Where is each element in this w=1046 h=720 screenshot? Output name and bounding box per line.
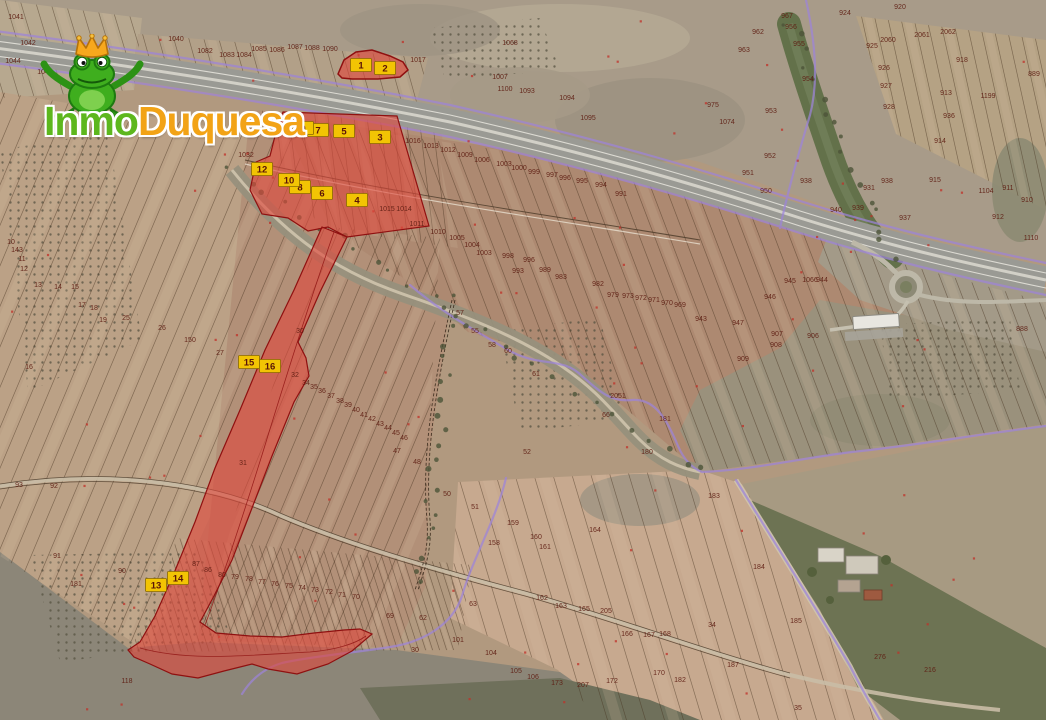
survey-mark	[890, 584, 892, 586]
parcel-number: 164	[589, 527, 601, 534]
parcel-number: 1005	[449, 235, 465, 242]
parcel-number: 1040	[168, 36, 184, 43]
parcel-number: 1032	[238, 152, 254, 159]
parcel-number: 2062	[940, 29, 956, 36]
survey-mark	[640, 362, 642, 364]
survey-mark	[863, 532, 865, 534]
parcel-number: 940	[830, 207, 842, 214]
svg-text:2: 2	[382, 64, 387, 75]
parcel-number: 31	[239, 460, 247, 467]
parcel-number: 73	[311, 587, 319, 594]
parcel-number: 971	[648, 297, 660, 304]
survey-mark	[515, 292, 517, 294]
parcel-number: 35	[310, 384, 318, 391]
parcel-number: 1104	[978, 188, 993, 195]
parcel-number: 52	[523, 449, 531, 456]
tree-dot	[464, 323, 469, 328]
parcel-number: 70	[352, 594, 360, 601]
survey-mark	[468, 698, 470, 700]
parcel-number: 907	[771, 331, 783, 338]
parcel-number: 950	[760, 188, 772, 195]
tree-dot	[874, 207, 878, 211]
parcel-number: 162	[536, 595, 548, 602]
tree-dot	[823, 112, 828, 117]
parcel-number: 1110	[1024, 235, 1039, 242]
tree-dot	[452, 294, 456, 298]
parcel-number: 1003	[496, 161, 512, 168]
parcel-number: 926	[878, 65, 890, 72]
tree-dot	[225, 166, 228, 169]
tree-dot	[351, 247, 354, 250]
parcel-number: 276	[874, 654, 886, 661]
survey-mark	[927, 623, 929, 625]
parcel-number: 172	[606, 678, 618, 685]
parcel-number: 39	[344, 402, 352, 409]
parcel-number: 972	[635, 295, 647, 302]
parcel-marker-9: 9	[293, 122, 314, 135]
parcel-number: 1100	[497, 86, 512, 93]
parcel-number: 55	[471, 328, 479, 335]
parcel-number: 1013	[423, 143, 439, 150]
tree-dot	[448, 373, 452, 377]
parcel-number: 18	[90, 305, 98, 312]
parcel-number: 1068	[502, 40, 518, 47]
parcel-number: 165	[578, 606, 590, 613]
parcel-number: 1094	[559, 95, 575, 102]
tree-dot	[799, 31, 805, 37]
parcel-number: 184	[753, 564, 765, 571]
tree-dot	[434, 513, 438, 517]
parcel-number: 43	[376, 421, 384, 428]
parcel-number: 888	[1016, 326, 1028, 333]
parcel-number: 42	[368, 416, 376, 423]
parcel-number: 993	[512, 268, 524, 275]
parcel-number: 1086	[269, 47, 285, 54]
svg-text:3: 3	[377, 133, 382, 144]
parcel-number: 1085	[251, 46, 267, 53]
survey-mark	[850, 251, 852, 253]
parcel-number: 1043	[37, 69, 53, 76]
parcel-number: 1090	[322, 46, 338, 53]
tree-dot	[838, 150, 842, 154]
parcel-number: 91	[53, 553, 61, 560]
parcel-number: 92	[50, 483, 58, 490]
parcel-number: 909	[737, 356, 749, 363]
tree-dot	[848, 167, 854, 173]
parcel-number: 19	[99, 317, 107, 324]
parcel-number: 41	[360, 412, 368, 419]
survey-mark	[596, 306, 598, 308]
svg-text:1: 1	[358, 61, 364, 72]
parcel-number: 158	[488, 540, 500, 547]
parcel-number: 997	[546, 172, 558, 179]
parcel-number: 205	[600, 608, 612, 615]
parcel-number: 2060	[880, 37, 896, 44]
tree-dot	[419, 556, 424, 561]
survey-mark	[630, 549, 632, 551]
survey-mark	[634, 346, 636, 348]
tree-dot	[425, 466, 431, 472]
survey-mark	[797, 160, 799, 162]
survey-mark	[615, 640, 617, 642]
parcel-number: 925	[866, 43, 878, 50]
parcel-number: 16	[25, 364, 33, 371]
survey-mark	[916, 339, 918, 341]
parcel-number: 60	[504, 348, 512, 355]
tree-dot	[376, 260, 381, 265]
parcel-number: 998	[502, 253, 514, 260]
survey-mark	[812, 370, 814, 372]
parcel-number: 1083	[219, 52, 235, 59]
parcel-number: 180	[641, 449, 653, 456]
survey-mark	[927, 244, 929, 246]
parcel-number: 995	[576, 178, 588, 185]
parcel-number: 1042	[20, 40, 36, 47]
parcel-number: 163	[555, 603, 567, 610]
survey-mark	[471, 75, 473, 77]
survey-mark	[696, 385, 698, 387]
survey-mark	[83, 485, 85, 487]
parcel-number: 37	[327, 393, 335, 400]
parcel-number: 1007	[492, 74, 508, 81]
cadastral-listing-image: 1041104210441043104010821083108410851086…	[0, 0, 1046, 720]
parcel-number: 1093	[519, 88, 535, 95]
svg-text:10: 10	[284, 176, 295, 187]
survey-mark	[563, 701, 565, 703]
parcel-number: 2061	[914, 32, 930, 39]
parcel-number: 87	[192, 561, 200, 568]
tree-dot	[698, 465, 703, 470]
parcel-number: 36	[318, 388, 326, 395]
tree-dot	[839, 134, 843, 138]
parcel-number: 71	[338, 592, 346, 599]
tree-dot	[822, 97, 828, 103]
parcel-number: 14	[54, 284, 62, 291]
parcel-number: 72	[325, 589, 333, 596]
survey-mark	[385, 371, 387, 373]
parcel-number: 915	[929, 177, 941, 184]
parcel-number: 908	[770, 342, 782, 349]
parcel-number: 185	[790, 618, 802, 625]
parcel-marker-15: 15	[239, 356, 260, 369]
parcel-number: 30	[411, 647, 419, 654]
survey-mark	[742, 425, 744, 427]
parcel-number: 63	[469, 601, 477, 608]
tree-dot	[804, 46, 808, 50]
parcel-number: 956	[785, 24, 797, 31]
parcel-number: 955	[793, 41, 805, 48]
parcel-number: 918	[956, 57, 968, 64]
parcel-number: 979	[607, 292, 619, 299]
survey-mark	[741, 530, 743, 532]
tree-dot	[442, 305, 447, 310]
parcel-number: 75	[285, 583, 293, 590]
tree-dot	[483, 327, 487, 331]
parcel-number: 105	[510, 668, 522, 675]
parcel-number: 938	[881, 178, 893, 185]
survey-mark	[781, 129, 783, 131]
parcel-number: 45	[392, 430, 400, 437]
survey-mark	[354, 533, 356, 535]
survey-mark	[215, 339, 217, 341]
parcel-number: 11	[18, 256, 25, 263]
parcel-marker-14: 14	[168, 572, 189, 585]
tree-dot	[572, 392, 577, 397]
parcel-number: 943	[695, 316, 707, 323]
survey-mark	[816, 236, 818, 238]
parcel-number: 182	[674, 677, 686, 684]
tree-dot	[438, 379, 443, 384]
parcel-number: 1015	[379, 206, 395, 213]
parcel-number: 181	[70, 581, 82, 588]
parcel-number: 74	[298, 585, 306, 592]
parcel-number: 967	[781, 13, 793, 20]
parcel-number: 34	[708, 622, 716, 629]
survey-mark	[640, 20, 642, 22]
parcel-number: 47	[393, 448, 401, 455]
svg-text:9: 9	[300, 124, 305, 135]
survey-mark	[224, 153, 226, 155]
parcel-number: 15	[71, 284, 79, 291]
parcel-number: 35	[794, 705, 802, 712]
parcel-number: 17	[78, 302, 86, 309]
parcel-number: 40	[352, 407, 360, 414]
parcel-number: 914	[934, 138, 946, 145]
survey-mark	[314, 600, 316, 602]
parcel-number: 946	[764, 294, 776, 301]
parcel-number: 1095	[580, 115, 596, 122]
survey-mark	[86, 708, 88, 710]
parcel-marker-16: 16	[260, 360, 281, 373]
tree-dot	[434, 457, 439, 462]
svg-text:4: 4	[354, 196, 360, 207]
parcel-number: 80	[218, 572, 226, 579]
parcel-number: 991	[615, 191, 627, 198]
parcel-number: 983	[555, 274, 567, 281]
parcel-number: 26	[158, 325, 166, 332]
parcel-number: 104	[485, 650, 497, 657]
survey-mark	[973, 557, 975, 559]
survey-mark	[613, 382, 615, 384]
survey-mark	[159, 39, 161, 41]
parcel-number: 150	[184, 337, 196, 344]
parcel-number: 928	[883, 104, 895, 111]
parcel-number: 62	[419, 615, 427, 622]
parcel-number: 90	[118, 568, 126, 575]
parcel-number: 1003	[476, 250, 492, 257]
parcel-number: 889	[1028, 71, 1040, 78]
tree-dot	[435, 294, 439, 298]
parcel-number: 912	[992, 214, 1004, 221]
survey-mark	[47, 254, 49, 256]
parcel-number: 944	[816, 277, 828, 284]
survey-mark	[903, 494, 905, 496]
parcel-number: 1074	[719, 119, 735, 126]
parcel-number: 58	[488, 342, 496, 349]
parcel-number: 50	[443, 491, 451, 498]
parcel-marker-2: 2	[375, 62, 396, 75]
parcel-number: 996	[523, 257, 535, 264]
parcel-number: 168	[659, 631, 671, 638]
parcel-number: 996	[559, 175, 571, 182]
parcel-number: 86	[204, 567, 212, 574]
svg-text:16: 16	[265, 362, 276, 373]
parcel-number: 166	[621, 631, 633, 638]
tree-dot	[424, 499, 428, 503]
survey-mark	[792, 318, 794, 320]
survey-mark	[417, 416, 419, 418]
parcel-number: 973	[622, 293, 634, 300]
parcel-number: 78	[245, 576, 253, 583]
svg-text:7: 7	[315, 126, 320, 137]
parcel-number: 46	[400, 435, 408, 442]
tree-dot	[893, 257, 898, 262]
parcel-number: 936	[943, 113, 955, 120]
parcel-number: 13	[34, 282, 42, 289]
parcel-number: 945	[784, 278, 796, 285]
parcel-number: 2051	[610, 393, 626, 400]
survey-mark	[474, 224, 476, 226]
parcel-number: 1088	[304, 45, 320, 52]
parcel-number: 1017	[410, 57, 426, 64]
parcel-number: 982	[592, 281, 604, 288]
tree-dot	[876, 237, 881, 242]
parcel-number: 57	[456, 310, 464, 317]
parcel-number: 118	[121, 678, 132, 685]
parcel-number: 1041	[8, 14, 24, 21]
survey-mark	[402, 41, 404, 43]
parcel-marker-4: 4	[347, 194, 368, 207]
survey-mark	[654, 489, 656, 491]
parcel-number: 38	[336, 398, 344, 405]
tree-dot	[427, 536, 430, 539]
parcel-number: 920	[894, 4, 906, 11]
parcel-marker-1: 1	[351, 59, 372, 72]
parcel-number: 30	[296, 328, 304, 335]
parcel-number: 994	[595, 182, 607, 189]
parcel-number: 938	[800, 178, 812, 185]
parcel-number: 25	[122, 315, 130, 322]
parcel-number: 51	[471, 504, 479, 511]
survey-mark	[673, 132, 675, 134]
survey-mark	[133, 607, 135, 609]
parcel-marker-12: 12	[252, 163, 273, 176]
tree-dot	[876, 230, 881, 235]
parcel-number: 906	[807, 333, 819, 340]
survey-mark	[269, 222, 271, 224]
parcel-number: 159	[507, 520, 519, 527]
survey-mark	[897, 652, 899, 654]
survey-mark	[407, 423, 409, 425]
parcel-number: 947	[732, 320, 744, 327]
parcel-number: 69	[386, 613, 394, 620]
tree-dot	[434, 413, 440, 419]
survey-mark	[854, 219, 856, 221]
tree-dot	[435, 488, 440, 493]
survey-mark	[573, 217, 575, 219]
map-canvas: 1041104210441043104010821083108410851086…	[0, 0, 1046, 720]
parcel-number: 962	[752, 29, 764, 36]
parcel-number: 170	[653, 670, 665, 677]
parcel-number: 1044	[5, 58, 21, 65]
survey-mark	[870, 215, 872, 217]
svg-text:5: 5	[341, 127, 347, 138]
parcel-number: 161	[539, 544, 551, 551]
parcel-number: 1199	[980, 93, 995, 100]
parcel-number: 216	[924, 667, 936, 674]
tree-dot	[414, 569, 419, 574]
parcel-number: 34	[302, 380, 310, 387]
parcel-number: 1011	[409, 221, 424, 228]
tree-dot	[418, 579, 423, 584]
survey-mark	[252, 80, 254, 82]
parcel-number: 999	[528, 169, 540, 176]
survey-mark	[524, 651, 526, 653]
survey-mark	[626, 446, 628, 448]
parcel-number: 1000	[511, 165, 527, 172]
survey-mark	[666, 653, 668, 655]
parcel-number: 79	[231, 574, 239, 581]
parcel-number: 924	[839, 10, 851, 17]
survey-mark	[328, 498, 330, 500]
parcel-number: 951	[742, 170, 754, 177]
survey-mark	[86, 423, 88, 425]
survey-mark	[194, 190, 196, 192]
survey-mark	[842, 183, 844, 185]
tree-dot	[440, 344, 446, 350]
parcel-number: 160	[530, 534, 542, 541]
tree-dot	[801, 66, 804, 69]
parcel-number: 939	[852, 205, 864, 212]
parcel-number: 27	[216, 350, 224, 357]
tree-dot	[436, 443, 441, 448]
parcel-number: 76	[271, 581, 279, 588]
survey-mark	[619, 226, 621, 228]
survey-mark	[293, 417, 295, 419]
parcel-number: 911	[1002, 185, 1013, 192]
tree-dot	[686, 462, 692, 468]
svg-text:15: 15	[244, 358, 255, 369]
survey-mark	[902, 405, 904, 407]
parcel-number: 77	[258, 579, 266, 586]
parcel-number: 93	[15, 482, 23, 489]
survey-mark	[163, 475, 165, 477]
survey-mark	[452, 590, 454, 592]
parcel-number: 963	[738, 47, 750, 54]
parcel-number: 913	[940, 90, 952, 97]
survey-mark	[800, 271, 802, 273]
survey-mark	[1023, 61, 1025, 63]
parcel-number: 12	[20, 266, 28, 273]
parcel-number: 207	[577, 682, 589, 689]
parcel-number: 101	[452, 637, 464, 644]
parcel-number: 48	[413, 459, 421, 466]
tree-dot	[431, 526, 435, 530]
parcel-number: 1012	[440, 147, 456, 154]
tree-dot	[595, 401, 599, 405]
survey-mark	[940, 189, 942, 191]
parcel-number: 953	[765, 108, 777, 115]
survey-mark	[11, 311, 13, 313]
parcel-marker-10: 10	[279, 174, 300, 187]
svg-text:12: 12	[257, 165, 268, 176]
parcel-number: 183	[708, 493, 720, 500]
parcel-number: 167	[643, 632, 655, 639]
survey-mark	[746, 692, 748, 694]
tree-dot	[667, 446, 673, 452]
parcel-marker-13: 13	[146, 579, 167, 592]
parcel-number: 1084	[236, 52, 252, 59]
